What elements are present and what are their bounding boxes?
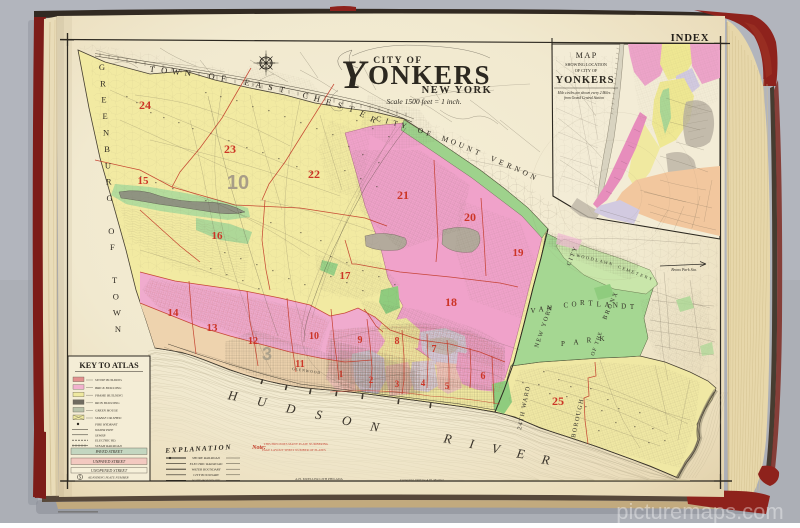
svg-text:18: 18 xyxy=(445,295,457,309)
svg-text:PAVED STREET: PAVED STREET xyxy=(95,449,124,454)
svg-text:F: F xyxy=(110,242,115,252)
svg-text:STABLE OR SHED: STABLE OR SHED xyxy=(95,416,122,420)
svg-text:OF CITY OF: OF CITY OF xyxy=(575,68,598,73)
svg-text:THIS PRECEDES MANY PLATE NUMBE: THIS PRECEDES MANY PLATE NUMBERING xyxy=(264,442,329,446)
svg-text:L: L xyxy=(597,300,601,308)
svg-text:R: R xyxy=(100,78,106,88)
svg-text:20: 20 xyxy=(464,210,476,224)
svg-text:3: 3 xyxy=(262,344,272,364)
svg-text:O: O xyxy=(113,291,119,301)
svg-text:Mile circles are shown every 2: Mile circles are shown every 2 Miles xyxy=(557,91,611,95)
svg-text:4: 4 xyxy=(421,378,426,388)
svg-text:2: 2 xyxy=(369,375,374,385)
svg-text:21: 21 xyxy=(397,188,409,202)
svg-text:FRAME BUILDING: FRAME BUILDING xyxy=(94,393,123,397)
svg-text:BRICK BUILDING: BRICK BUILDING xyxy=(95,386,122,390)
svg-text:7: 7 xyxy=(432,344,437,355)
svg-text:N: N xyxy=(115,324,121,334)
svg-text:T: T xyxy=(112,275,118,285)
svg-text:N: N xyxy=(103,128,109,138)
svg-text:E: E xyxy=(102,111,107,121)
svg-text:O: O xyxy=(108,226,114,236)
svg-text:T: T xyxy=(588,300,593,308)
svg-text:W: W xyxy=(113,308,121,318)
svg-text:FIRE HYDRANT: FIRE HYDRANT xyxy=(94,423,119,427)
svg-text:INDEX: INDEX xyxy=(671,32,710,44)
svg-text:picturemaps.com: picturemaps.com xyxy=(616,499,784,523)
svg-text:Copyright 1907 by A.H. Mueller: Copyright 1907 by A.H. Mueller xyxy=(400,478,445,482)
svg-text:Bronx Park Sta.: Bronx Park Sta. xyxy=(671,267,697,272)
svg-text:G: G xyxy=(107,193,113,203)
svg-text:23: 23 xyxy=(224,142,236,156)
svg-text:GREEN HOUSE: GREEN HOUSE xyxy=(95,409,119,413)
svg-text:ELECTRIC RAILROAD: ELECTRIC RAILROAD xyxy=(189,462,223,466)
svg-text:CITY BOUNDARY: CITY BOUNDARY xyxy=(193,473,220,477)
svg-text:1: 1 xyxy=(339,369,344,379)
svg-text:WATER BOUNDARY: WATER BOUNDARY xyxy=(191,467,221,471)
svg-text:R: R xyxy=(580,299,585,307)
svg-text:UNPAVED STREET: UNPAVED STREET xyxy=(93,459,126,464)
svg-text:24: 24 xyxy=(139,98,151,112)
svg-text:U: U xyxy=(105,160,111,170)
svg-text:A: A xyxy=(539,306,544,314)
svg-text:Y: Y xyxy=(341,52,369,97)
svg-text:W: W xyxy=(172,66,181,77)
svg-text:25: 25 xyxy=(552,394,564,408)
svg-text:T: T xyxy=(630,303,635,311)
svg-text:M A P: M A P xyxy=(576,51,597,60)
svg-text:IRON BUILDING: IRON BUILDING xyxy=(94,401,120,405)
svg-text:E: E xyxy=(101,95,106,105)
svg-text:6: 6 xyxy=(481,371,486,382)
svg-text:KEY TO ATLAS: KEY TO ATLAS xyxy=(79,361,139,370)
svg-text:A.H. MUELLER LITH PHILADA: A.H. MUELLER LITH PHILADA xyxy=(295,477,343,481)
svg-text:N: N xyxy=(184,67,191,78)
svg-text:5: 5 xyxy=(79,475,81,480)
svg-text:10: 10 xyxy=(227,172,249,194)
svg-text:19: 19 xyxy=(513,247,525,259)
svg-text:ADJOINING PLATE NUMBER: ADJOINING PLATE NUMBER xyxy=(87,475,128,479)
svg-text:G: G xyxy=(99,62,105,72)
svg-text:13: 13 xyxy=(207,322,219,334)
svg-text:UNOPENED STREET: UNOPENED STREET xyxy=(91,468,128,473)
svg-text:8: 8 xyxy=(395,336,400,347)
svg-text:17: 17 xyxy=(340,270,352,282)
svg-text:3: 3 xyxy=(395,379,400,389)
svg-text:12: 12 xyxy=(248,336,258,347)
svg-text:STEAM RAILROAD: STEAM RAILROAD xyxy=(95,444,122,448)
svg-text:14: 14 xyxy=(168,307,180,319)
svg-text:16: 16 xyxy=(212,230,224,242)
svg-text:YONKERS: YONKERS xyxy=(556,75,615,86)
svg-text:WATER PIPE: WATER PIPE xyxy=(95,428,113,432)
svg-text:Scale 1500 feet = 1 inch.: Scale 1500 feet = 1 inch. xyxy=(386,97,461,106)
svg-text:O: O xyxy=(161,65,168,76)
svg-text:NEW YORK: NEW YORK xyxy=(422,85,493,96)
svg-text:C: C xyxy=(563,302,568,310)
svg-text:O: O xyxy=(571,300,576,308)
svg-text:ELECTRIC RD.: ELECTRIC RD. xyxy=(94,439,116,443)
svg-text:R: R xyxy=(106,177,112,187)
svg-text:SEWER: SEWER xyxy=(95,433,105,437)
svg-text:5: 5 xyxy=(445,381,450,391)
svg-text:SHORE RAILROAD: SHORE RAILROAD xyxy=(192,456,220,460)
svg-text:B: B xyxy=(104,144,110,154)
svg-text:from Grand Central Station: from Grand Central Station xyxy=(564,96,604,100)
svg-text:STONE BUILDING: STONE BUILDING xyxy=(95,378,123,382)
svg-text:PAGE LAYOUT SHEET NUMBER OF PL: PAGE LAYOUT SHEET NUMBER OF PLATES xyxy=(262,448,326,452)
svg-text:V: V xyxy=(530,307,535,315)
svg-text:22: 22 xyxy=(308,167,320,181)
svg-text:D: D xyxy=(621,302,626,310)
svg-text:15: 15 xyxy=(138,175,150,187)
svg-text:R: R xyxy=(587,337,592,345)
svg-text:A: A xyxy=(573,338,578,346)
svg-text:P: P xyxy=(561,340,565,348)
svg-text:10: 10 xyxy=(309,331,319,342)
svg-text:WARD BOUNDARY: WARD BOUNDARY xyxy=(192,479,221,483)
svg-text:9: 9 xyxy=(358,335,363,346)
svg-text:SHOWING LOCATION: SHOWING LOCATION xyxy=(565,62,607,67)
